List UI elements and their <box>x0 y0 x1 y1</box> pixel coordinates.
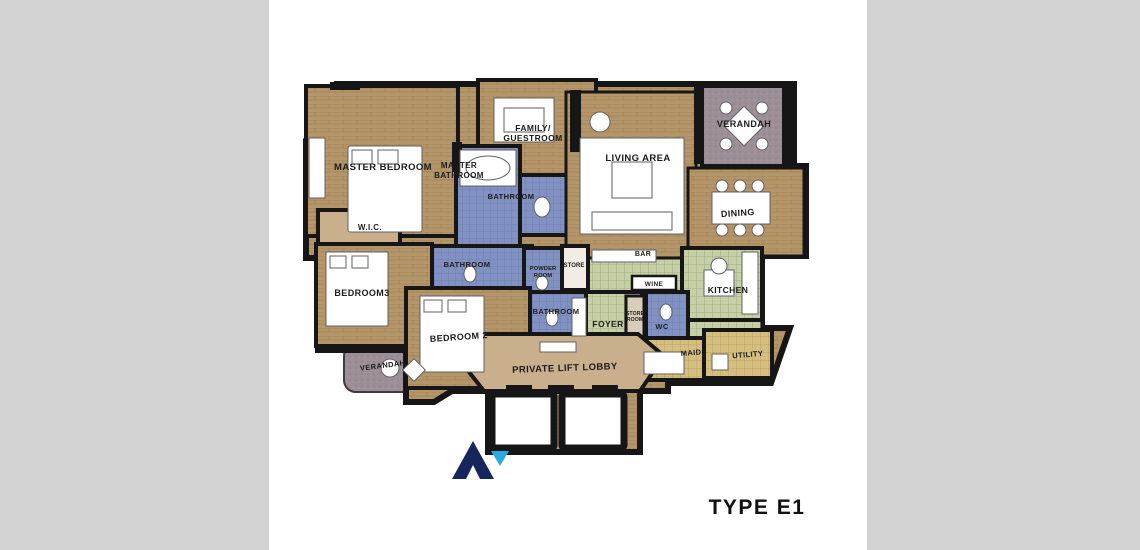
bathroom-mid-area <box>432 246 532 292</box>
label-family-guestroom-2: GUESTROOM <box>503 133 562 143</box>
label-master-bathroom-2: BATHROOM <box>434 171 484 180</box>
label-bedroom3: BEDROOM3 <box>334 288 389 298</box>
label-verandah-top: VERANDAH <box>717 119 771 129</box>
plan-type-caption: TYPE E1 <box>709 496 806 519</box>
label-foyer: FOYER <box>592 319 623 329</box>
label-wine: WINE <box>645 281 664 288</box>
label-store-room-2: ROOM <box>627 317 644 323</box>
page-background: MASTER BEDROOM MASTER BATHROOM FAMILY/ G… <box>0 0 1140 550</box>
label-wc: WC <box>655 322 668 331</box>
label-bathroom-top: BATHROOM <box>488 192 535 201</box>
lift-shaft-right <box>562 394 624 448</box>
label-powder-room-1: POWDER <box>530 266 557 272</box>
label-bathroom-lower: BATHROOM <box>533 307 580 316</box>
label-master-bathroom-1: MASTER <box>441 161 477 170</box>
label-wic: W.I.C. <box>358 223 382 232</box>
label-bathroom-mid: BATHROOM <box>444 260 491 269</box>
label-kitchen: KITCHEN <box>708 285 749 295</box>
label-bar: BAR <box>635 251 651 258</box>
lift-shaft-left <box>492 394 554 448</box>
label-master-bedroom: MASTER BEDROOM <box>334 162 432 173</box>
floorplan-image: MASTER BEDROOM MASTER BATHROOM FAMILY/ G… <box>0 0 1140 550</box>
label-family-guestroom-1: FAMILY/ <box>515 123 551 133</box>
label-living-area: LIVING AREA <box>605 153 670 164</box>
label-powder-room-2: ROOM <box>534 273 553 279</box>
label-store: STORE <box>563 263 584 269</box>
